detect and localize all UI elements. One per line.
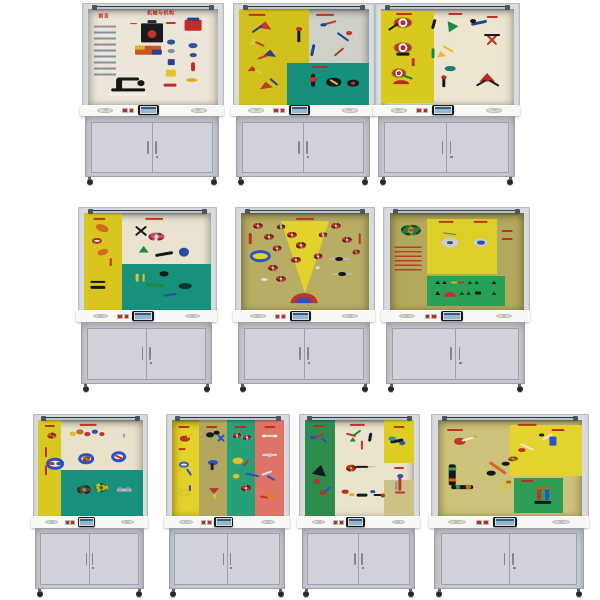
fluorescent-tube <box>176 417 281 420</box>
cabinet-doors <box>244 328 364 380</box>
model-disc <box>99 432 104 436</box>
model-disc <box>296 27 302 31</box>
model-bar <box>142 273 145 282</box>
model-ell <box>179 248 189 257</box>
model-mark <box>438 221 453 223</box>
model-bar <box>91 280 106 282</box>
model-ring <box>179 461 189 468</box>
lcd-screen-glass <box>349 519 362 525</box>
door-seam <box>89 533 90 585</box>
lcd-screen-glass <box>435 107 451 113</box>
model-disc <box>539 433 545 436</box>
model-disc <box>261 278 267 282</box>
display-case <box>299 414 420 520</box>
model-ell <box>338 272 346 276</box>
start-button <box>424 109 428 112</box>
caster-wheel-left <box>303 591 309 597</box>
model-bar <box>211 463 214 471</box>
model-intro-text-block <box>94 26 116 79</box>
model-disc <box>92 429 98 434</box>
door-handle-left <box>86 553 88 565</box>
model-bar <box>368 432 372 441</box>
model-bar <box>310 44 316 56</box>
lcd-screen-glass <box>135 313 150 319</box>
model-disc <box>370 490 375 494</box>
caster-wheel-right <box>576 591 582 597</box>
keyhole <box>308 362 310 364</box>
control-counter <box>297 516 420 528</box>
door-handle-right <box>512 553 514 565</box>
lcd-screen <box>214 517 233 527</box>
model-disc <box>147 30 156 38</box>
caster-wheel-left <box>87 179 93 185</box>
backboard <box>305 420 415 517</box>
lower-cabinet <box>236 116 370 177</box>
power-button <box>477 521 481 524</box>
speaker-grille-left <box>45 520 58 525</box>
display-cabinet-r2c2 <box>235 207 373 392</box>
model-arc <box>393 80 409 84</box>
display-cabinet-r3c3 <box>299 414 418 597</box>
display-case <box>33 414 148 520</box>
model-gear <box>313 253 322 258</box>
model-disc <box>536 486 542 489</box>
control-counter <box>80 105 224 117</box>
model-bar <box>163 84 176 87</box>
cabinet-doors <box>384 122 508 173</box>
model-disc <box>76 429 83 434</box>
model-rect <box>466 485 470 489</box>
model-target <box>394 43 411 53</box>
door-seam <box>152 122 153 173</box>
speaker-grille-left <box>179 520 193 525</box>
caster-wheel-right <box>204 386 210 392</box>
model-gear-disc-model <box>149 232 164 241</box>
model-mark <box>522 480 534 482</box>
door-seam <box>227 533 228 585</box>
start-button <box>71 521 74 524</box>
model-rect <box>116 79 122 90</box>
cabinet-doors <box>40 533 138 585</box>
model-mark <box>396 13 412 15</box>
model-red-gear-model <box>253 223 263 229</box>
door-seam <box>304 328 305 380</box>
model-ell <box>267 453 273 457</box>
start-button <box>282 315 285 318</box>
cabinet-doors <box>441 533 577 585</box>
model-mark <box>502 238 513 240</box>
backboard <box>84 213 211 311</box>
cabinet-doors <box>87 328 206 380</box>
backboard <box>390 213 524 311</box>
door-handle-right <box>149 347 151 360</box>
lower-cabinet <box>378 116 515 177</box>
model-mark <box>449 13 462 15</box>
display-case <box>235 207 375 314</box>
model-disc <box>441 76 446 79</box>
door-handle-right <box>306 141 308 153</box>
door-seam <box>146 328 147 380</box>
model-tri <box>444 21 459 35</box>
speaker-grille-right <box>486 108 502 113</box>
model-gear <box>352 250 360 255</box>
model-tri <box>350 437 357 442</box>
model-disc <box>233 474 240 479</box>
power-button <box>66 521 69 524</box>
model-gear <box>243 435 252 441</box>
model-disc <box>321 23 326 26</box>
caster-wheel-left <box>388 386 394 392</box>
caster-wheel-right <box>136 591 142 597</box>
caster-wheel-left <box>240 386 246 392</box>
model-mark <box>145 218 163 220</box>
fluorescent-tube <box>93 6 213 9</box>
control-counter <box>231 105 375 117</box>
door-handle-left <box>442 141 444 153</box>
lower-cabinet <box>81 322 212 384</box>
caster-wheel-right <box>517 386 523 392</box>
door-handle-right <box>361 553 363 565</box>
backboard <box>172 420 285 517</box>
door-handle-left <box>299 347 301 360</box>
model-mark <box>178 426 189 428</box>
power-button <box>123 109 126 112</box>
model-tri <box>436 51 446 58</box>
model-disc <box>470 19 476 23</box>
model-bar <box>356 494 367 497</box>
fluorescent-tube <box>386 6 509 9</box>
caster-wheel-right <box>278 591 284 597</box>
caster-wheel-right <box>362 386 368 392</box>
model-gear <box>276 275 286 281</box>
door-handle-right <box>92 553 94 565</box>
door-seam <box>358 533 359 585</box>
display-cabinet-r2c3 <box>383 207 528 392</box>
power-button <box>202 521 205 524</box>
display-case: 前言机械与机构 <box>82 3 224 109</box>
model-disc <box>389 436 396 441</box>
door-handle-right <box>450 141 452 153</box>
caster-wheel-left <box>238 179 244 185</box>
lower-cabinet <box>434 528 583 589</box>
model-gear <box>241 484 251 491</box>
caster-wheel-right <box>211 179 217 185</box>
cabinet-doors <box>392 328 518 380</box>
model-bar <box>213 494 215 499</box>
model-ell <box>189 43 198 49</box>
model-disc <box>487 471 496 476</box>
lcd-screen <box>132 311 153 321</box>
lcd-screen-glass <box>293 313 308 319</box>
lcd-screen <box>138 105 160 115</box>
lower-cabinet <box>35 528 143 589</box>
model-rect <box>135 45 145 50</box>
model-bar <box>297 29 300 42</box>
lower-cabinet <box>85 116 219 177</box>
model-gear <box>233 433 242 439</box>
model-mark <box>166 22 176 24</box>
backboard <box>38 420 142 517</box>
display-cabinet-r3c4 <box>431 414 587 597</box>
model-rect <box>449 468 456 471</box>
model-rect <box>451 281 457 284</box>
model-gear <box>342 236 352 242</box>
model-disc <box>518 448 525 452</box>
speaker-grille-left <box>248 108 264 113</box>
fluorescent-tube <box>308 417 410 420</box>
model-mark <box>447 429 463 431</box>
model-disc <box>473 435 478 438</box>
lcd-screen <box>493 517 517 527</box>
power-button <box>274 109 277 112</box>
model-gear <box>331 223 341 229</box>
model-mark <box>473 221 488 223</box>
cabinet-doors <box>307 533 411 585</box>
speaker-grille-right <box>261 520 275 525</box>
fluorescent-tube <box>246 210 365 213</box>
model-gear <box>272 246 281 251</box>
cabinet-doors <box>242 122 364 173</box>
power-button <box>334 521 337 524</box>
model-tri <box>139 246 149 253</box>
model-disc <box>349 493 354 497</box>
model-mark <box>551 429 564 431</box>
display-case <box>166 414 290 520</box>
door-handle-left <box>354 553 356 565</box>
lower-cabinet <box>238 322 370 384</box>
caster-wheel-right <box>507 179 513 185</box>
model-jack-model <box>399 477 402 491</box>
photo-canvas: 前言机械与机构 <box>0 0 600 600</box>
fluorescent-tube <box>89 210 207 213</box>
lcd-screen <box>289 105 311 115</box>
lcd-screen-glass <box>141 107 157 113</box>
keyhole <box>92 567 94 569</box>
caster-wheel-left <box>380 179 386 185</box>
cabinet-doors <box>91 122 213 173</box>
model-mark <box>502 230 513 232</box>
model-gear <box>264 234 274 240</box>
lcd-screen-glass <box>80 519 93 525</box>
start-button <box>432 315 436 318</box>
model-bar <box>91 286 106 288</box>
backboard <box>381 9 513 105</box>
model-mark <box>94 218 105 220</box>
speaker-grille-left <box>448 520 466 525</box>
model-blue-lever-model <box>550 437 557 446</box>
door-handle-left <box>147 141 149 153</box>
lcd-screen-glass <box>217 519 231 525</box>
model-rect <box>109 93 148 95</box>
lcd-screen <box>432 105 454 115</box>
speaker-grille-right <box>552 520 570 525</box>
keyhole <box>362 567 364 569</box>
door-seam <box>446 122 447 173</box>
control-counter <box>373 105 520 117</box>
speaker-grille-left <box>391 108 407 113</box>
model-disc <box>409 228 414 231</box>
model-disc <box>168 49 174 53</box>
model-orange-gear-model <box>47 432 56 439</box>
model-mark <box>359 233 362 245</box>
caster-wheel-right <box>408 591 414 597</box>
model-bar <box>185 469 191 477</box>
model-bar <box>189 485 191 491</box>
door-handle-right <box>459 347 461 360</box>
model-disc <box>506 480 512 483</box>
model-mark <box>316 14 334 16</box>
model-rect <box>396 53 409 56</box>
model-mark <box>312 66 328 68</box>
display-cabinet-r3c1 <box>33 414 146 597</box>
start-button <box>130 109 133 112</box>
display-case <box>431 414 589 520</box>
model-mark <box>249 14 266 16</box>
model-rect <box>458 281 464 284</box>
model-bar <box>191 62 195 72</box>
control-counter <box>164 516 290 528</box>
speaker-grille-left <box>250 314 266 319</box>
model-ell <box>179 284 192 290</box>
model-bar <box>334 48 344 57</box>
keyhole <box>459 362 462 364</box>
backboard: 前言机械与机构 <box>88 9 217 105</box>
start-button <box>281 109 284 112</box>
keyhole <box>307 156 309 158</box>
door-handle-left <box>223 553 225 565</box>
lcd-screen-glass <box>444 313 460 319</box>
model-compass-disc-model <box>77 485 91 495</box>
model-rect <box>187 18 199 21</box>
model-rect <box>166 70 176 77</box>
model-label-machines-and-mechanisms: 机械与机构 <box>147 11 175 16</box>
model-mark <box>264 426 275 428</box>
lcd-screen <box>78 517 95 527</box>
display-case <box>383 207 530 314</box>
display-case <box>375 3 520 109</box>
model-mark <box>394 426 405 428</box>
control-counter <box>429 516 590 528</box>
model-bar <box>432 49 435 59</box>
model-disc <box>190 53 196 57</box>
display-cabinet-r2c1 <box>78 207 215 392</box>
lower-cabinet <box>386 322 525 384</box>
model-rect <box>168 59 174 65</box>
model-disc <box>85 432 90 436</box>
model-mark <box>361 441 363 450</box>
display-cabinet-r3c2 <box>166 414 288 597</box>
model-mark <box>80 424 97 426</box>
model-disc <box>315 266 321 270</box>
model-disc <box>447 241 453 245</box>
model-mark <box>313 425 324 427</box>
board-panel <box>427 219 497 274</box>
model-mark <box>45 425 55 427</box>
model-mark <box>518 424 537 426</box>
backboard <box>239 9 368 105</box>
model-mark <box>178 448 185 450</box>
model-rect <box>395 491 405 494</box>
model-gear <box>94 483 108 493</box>
door-handle-left <box>450 347 452 360</box>
model-bar <box>136 273 139 282</box>
fluorescent-tube <box>443 417 577 420</box>
speaker-grille-right <box>121 520 134 525</box>
caster-wheel-left <box>170 591 176 597</box>
speaker-grille-right <box>392 520 405 525</box>
model-mark <box>350 424 364 426</box>
cabinet-doors <box>174 533 280 585</box>
door-handle-left <box>298 141 300 153</box>
model-disc <box>501 461 510 466</box>
speaker-grille-right <box>342 314 358 319</box>
lcd-screen <box>290 311 311 321</box>
model-bar <box>155 251 173 257</box>
model-mark <box>45 447 47 457</box>
keyhole <box>513 567 516 569</box>
model-blue-ring-model <box>250 250 270 262</box>
board-panel <box>427 276 505 306</box>
model-mark <box>249 233 252 245</box>
start-button <box>125 315 128 318</box>
control-counter <box>31 516 147 528</box>
display-cabinet-r1c1: 前言机械与机构 <box>82 3 222 185</box>
door-seam <box>509 533 510 585</box>
model-bar <box>534 501 551 503</box>
model-mark <box>130 23 138 25</box>
fluorescent-tube <box>42 417 139 420</box>
model-label-foreword: 前言 <box>98 14 109 19</box>
control-counter <box>381 310 530 322</box>
model-disc <box>346 31 352 35</box>
backboard <box>241 213 369 311</box>
caster-wheel-left <box>83 386 89 392</box>
display-case <box>78 207 217 314</box>
door-handle-left <box>504 553 506 565</box>
speaker-grille-left <box>93 314 109 319</box>
model-ell <box>445 66 456 72</box>
model-disc <box>70 431 76 436</box>
start-button <box>340 521 343 524</box>
start-button <box>208 521 211 524</box>
start-button <box>484 521 488 524</box>
speaker-grille-right <box>185 314 201 319</box>
control-counter <box>233 310 375 322</box>
model-mark <box>110 258 113 266</box>
model-mark <box>412 58 415 66</box>
model-bar <box>442 46 453 54</box>
door-seam <box>455 328 456 380</box>
door-handle-right <box>230 553 232 565</box>
board-panel <box>61 470 142 516</box>
model-mark <box>207 426 218 428</box>
model-disc <box>477 240 485 245</box>
model-bar <box>123 433 125 438</box>
caster-wheel-left <box>37 591 43 597</box>
model-bar <box>395 481 397 491</box>
model-disc <box>273 434 278 437</box>
model-gear <box>268 265 278 271</box>
model-rect <box>185 33 201 36</box>
model-rect <box>456 485 460 489</box>
lcd-screen-glass <box>496 519 513 525</box>
lcd-screen-glass <box>292 107 308 113</box>
display-cabinet-r1c3 <box>375 3 518 185</box>
model-arc <box>296 297 311 303</box>
power-button <box>118 315 121 318</box>
model-disc <box>397 474 402 478</box>
power-button <box>426 315 430 318</box>
